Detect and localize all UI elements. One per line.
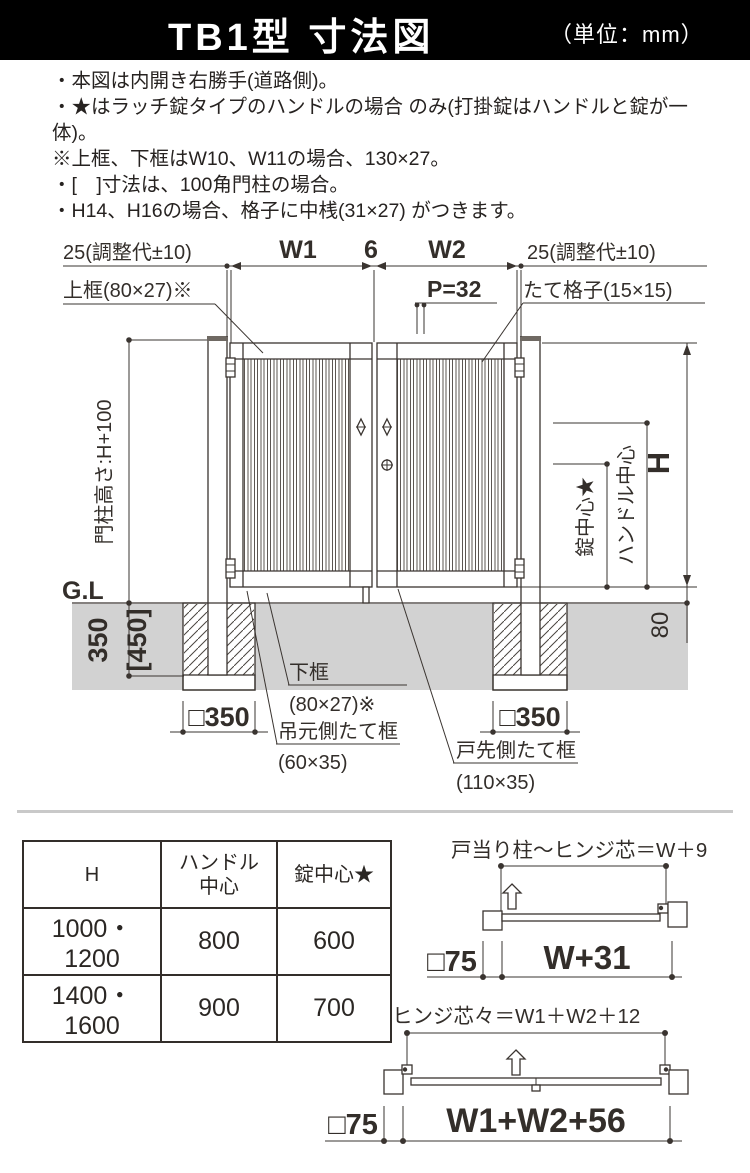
gl-label: G.L [62, 577, 104, 605]
open-direction-arrow [503, 884, 521, 909]
svg-text:吊元側たて框: 吊元側たて框 [278, 720, 398, 743]
col-header-h: H [23, 841, 161, 908]
note-line: ・H14、H16の場合、格子に中桟(31×27) がつきます。 [52, 198, 722, 224]
svg-text:下框: 下框 [289, 661, 329, 684]
plan-diagrams: 戸当り柱〜ヒンジ芯＝W＋9 □75 W+31 ヒンジ芯々＝W1＋W2＋12 [300, 828, 750, 1160]
title-bar: TB1型 寸法図 （単位：mm） [0, 0, 750, 60]
open-direction-arrow [507, 1050, 525, 1075]
label-top-rail: 上框(80×27)※ [63, 279, 263, 353]
stopper-post [483, 911, 502, 930]
note-line: ・本図は内開き右勝手(道路側)。 [52, 68, 722, 94]
center-joint [532, 1085, 540, 1091]
dim-adjust-left: 25(調整代±10) [63, 241, 192, 264]
unit-label: （単位：mm） [550, 17, 704, 49]
gate-post-right [520, 336, 541, 675]
dim-handle-center: ハンドル中心 [615, 445, 638, 565]
plan-double-post-dim: □75 [328, 1109, 378, 1141]
plan-double-leaf: ヒンジ芯々＝W1＋W2＋12 □75 W1+W2+56 [325, 1005, 688, 1144]
plan-double-width-dim: W1+W2+56 [446, 1102, 626, 1140]
gate-post-left [207, 336, 228, 675]
page-title: TB1型 寸法図 [168, 6, 434, 61]
svg-text:戸先側たて框: 戸先側たて框 [456, 739, 576, 762]
dim-right-group: 錠中心★ ハンドル中心 H 80 [517, 343, 697, 643]
dim-footing-left: □350 [170, 701, 268, 735]
dim-footing-right: □350 [480, 701, 580, 735]
drop-rod [363, 587, 369, 603]
dim-w2: W2 [428, 236, 466, 264]
gate-panel [502, 914, 660, 921]
svg-text:[450]: [450] [122, 608, 152, 671]
hinge-post-right [669, 1070, 688, 1094]
plan-single-title: 戸当り柱〜ヒンジ芯＝W＋9 [451, 839, 707, 862]
plan-single-leaf: 戸当り柱〜ヒンジ芯＝W＋9 □75 W+31 [427, 839, 707, 980]
col-header-handle: ハンドル 中心 [161, 841, 277, 908]
dim-height: H [641, 452, 676, 474]
gate-elevation-drawing: 25(調整代±10) W1 6 W2 25(調整代±10) 上框(80×27)※… [0, 225, 750, 810]
note-line: ・[ ]寸法は、100角門柱の場合。 [52, 172, 722, 198]
svg-text:P=32: P=32 [427, 276, 481, 302]
dimension-sheet: TB1型 寸法図 （単位：mm） ・本図は内開き右勝手(道路側)。 ・★はラッチ… [0, 0, 750, 1173]
svg-text:□350: □350 [188, 702, 249, 732]
gate-leaf-left [230, 343, 372, 587]
label-pitch: P=32 [415, 276, 497, 334]
dim-w1: W1 [279, 236, 317, 264]
svg-text:(80×27)※: (80×27)※ [289, 694, 375, 716]
ground [72, 604, 688, 690]
plan-single-width-dim: W+31 [543, 939, 630, 976]
note-line: ※上框、下框はW10、W11の場合、130×27。 [52, 146, 722, 172]
svg-text:□350: □350 [499, 702, 560, 732]
svg-text:門柱高さ:H+100: 門柱高さ:H+100 [93, 399, 116, 544]
svg-text:上框(80×27)※: 上框(80×27)※ [63, 279, 193, 302]
section-divider [17, 810, 733, 813]
hinge-post [668, 902, 687, 927]
svg-text:350: 350 [83, 617, 113, 662]
dim-post-height: 門柱高さ:H+100 [93, 337, 207, 606]
svg-text:(110×35): (110×35) [456, 772, 535, 794]
gate-leaf-right [377, 343, 517, 587]
plan-single-post-dim: □75 [427, 946, 477, 978]
dim-lock-center: 錠中心★ [574, 477, 597, 557]
notes: ・本図は内開き右勝手(道路側)。 ・★はラッチ錠タイプのハンドルの場合 のみ(打… [52, 68, 722, 224]
dim-adjust-right: 25(調整代±10) [527, 241, 656, 264]
dim-clearance: 80 [647, 612, 674, 639]
svg-text:たて格子(15×15): たて格子(15×15) [523, 279, 673, 302]
svg-text:(60×35): (60×35) [278, 752, 348, 774]
dim-center-gap: 6 [364, 236, 378, 264]
note-line: ・★はラッチ錠タイプのハンドルの場合 のみ(打掛錠はハンドルと錠が一体)。 [52, 94, 722, 146]
hinge-post-left [384, 1070, 403, 1094]
plan-double-title: ヒンジ芯々＝W1＋W2＋12 [392, 1005, 640, 1028]
